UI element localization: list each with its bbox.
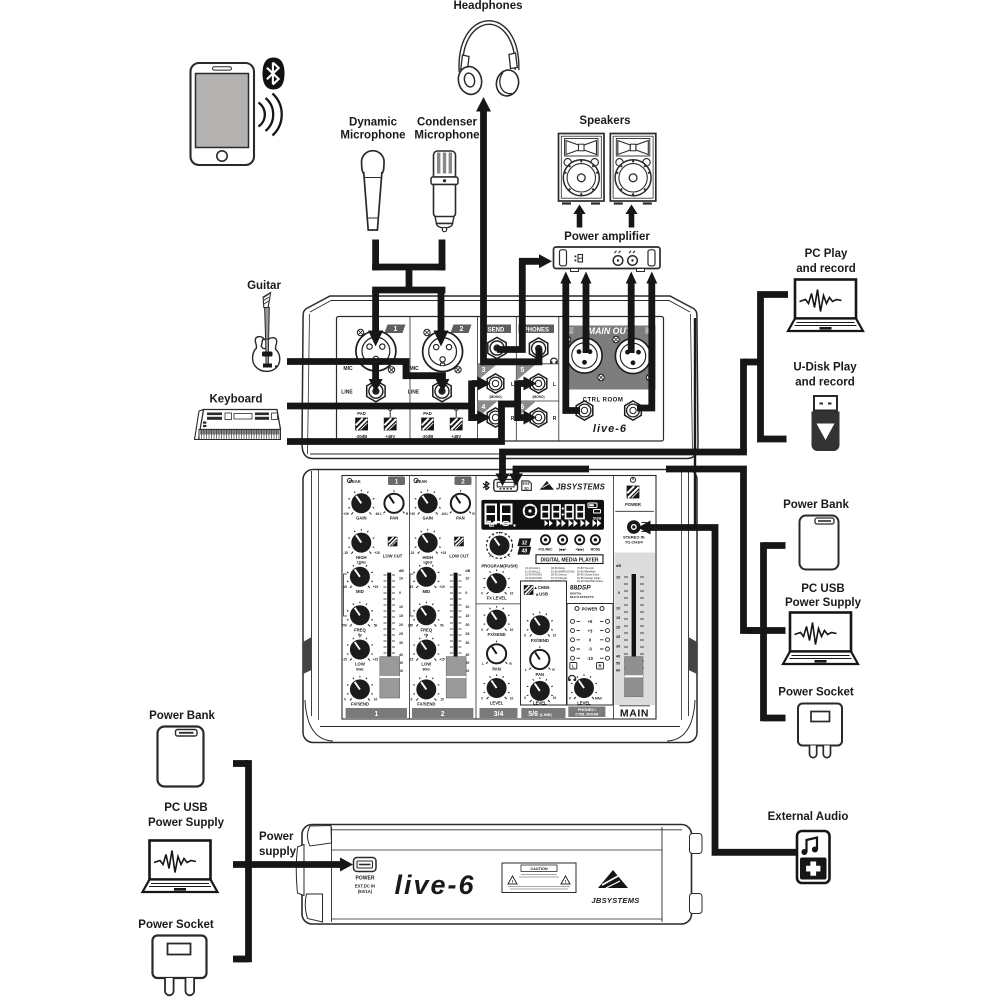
svg-text:POWER: POWER xyxy=(356,876,375,882)
svg-text:DIGITAL MEDIA PLAYER: DIGITAL MEDIA PLAYER xyxy=(540,558,598,564)
svg-text:PC USB: PC USB xyxy=(164,802,207,814)
svg-text:Microphone: Microphone xyxy=(340,130,405,142)
svg-text:12kHz: 12kHz xyxy=(423,561,433,565)
svg-text:-20dB: -20dB xyxy=(422,434,434,439)
svg-text:Power amplifier: Power amplifier xyxy=(564,231,650,243)
svg-text:PROGRAM(PUSH): PROGRAM(PUSH) xyxy=(481,564,518,569)
svg-text:MIC: MIC xyxy=(410,366,420,372)
svg-text:80Hz: 80Hz xyxy=(356,667,364,671)
svg-text:FX/SEND: FX/SEND xyxy=(417,701,435,706)
svg-text:250: 250 xyxy=(408,624,414,628)
svg-text:25: 25 xyxy=(399,632,403,636)
svg-text:M3: M3 xyxy=(489,524,494,528)
svg-text:2: 2 xyxy=(441,711,445,718)
svg-text:+3: +3 xyxy=(588,628,593,633)
svg-text:Speakers: Speakers xyxy=(579,115,630,127)
svg-text:PEAK: PEAK xyxy=(416,479,428,484)
svg-text:LEVEL: LEVEL xyxy=(490,701,504,706)
svg-text:3: 3 xyxy=(482,367,486,374)
svg-text:Headphones: Headphones xyxy=(453,0,522,12)
svg-text:+6: +6 xyxy=(588,619,593,624)
svg-text:-64: -64 xyxy=(441,512,446,516)
svg-text:GAIN: GAIN xyxy=(356,516,366,521)
svg-text:48: 48 xyxy=(521,549,528,555)
svg-text:CTRL ROOM: CTRL ROOM xyxy=(575,713,598,717)
svg-text:PEAK: PEAK xyxy=(349,479,361,484)
svg-text:PAN: PAN xyxy=(390,516,399,521)
svg-text:|◀◀/-: |◀◀/- xyxy=(559,547,567,551)
svg-text:LOW: LOW xyxy=(355,662,365,667)
svg-text:+20: +20 xyxy=(343,512,349,516)
svg-text:-15: -15 xyxy=(410,551,415,555)
svg-text:Guitar: Guitar xyxy=(247,280,281,292)
svg-text:0: 0 xyxy=(465,591,467,595)
svg-text:0: 0 xyxy=(344,698,346,702)
svg-text:88DSP: 88DSP xyxy=(570,585,591,592)
svg-text:R: R xyxy=(553,416,557,422)
svg-text:32: 32 xyxy=(522,540,528,546)
svg-text:HIGH: HIGH xyxy=(422,555,432,560)
svg-text:+15: +15 xyxy=(441,551,447,555)
svg-text:(MONO): (MONO) xyxy=(489,395,501,399)
svg-text:25: 25 xyxy=(616,635,620,639)
svg-text:FX LEVEL: FX LEVEL xyxy=(487,596,507,601)
svg-text:L: L xyxy=(447,512,449,516)
svg-text:+48V: +48V xyxy=(451,434,461,439)
svg-text:-3: -3 xyxy=(588,647,592,652)
svg-text:0: 0 xyxy=(524,634,526,638)
svg-text:EXT.DC IN: EXT.DC IN xyxy=(355,884,375,889)
svg-text:10: 10 xyxy=(465,605,469,609)
svg-text:POWER: POWER xyxy=(625,502,641,507)
svg-text:20: 20 xyxy=(465,623,469,627)
svg-text:R: R xyxy=(598,664,601,669)
svg-text:PC USB: PC USB xyxy=(801,583,844,595)
svg-text:0: 0 xyxy=(481,628,483,632)
svg-text:250: 250 xyxy=(341,624,347,628)
svg-text:PAD: PAD xyxy=(357,411,366,416)
svg-text:25: 25 xyxy=(465,632,469,636)
svg-text:15: 15 xyxy=(616,616,620,620)
svg-text:PAN: PAN xyxy=(456,516,465,521)
svg-text:LINE: LINE xyxy=(341,389,353,395)
svg-text:LOW: LOW xyxy=(421,662,431,667)
svg-text:40: 40 xyxy=(616,655,620,659)
svg-text:and record: and record xyxy=(795,377,854,389)
svg-text:dB: dB xyxy=(399,569,404,573)
svg-text:HIGH: HIGH xyxy=(356,555,366,560)
svg-text:Condenser: Condenser xyxy=(417,117,478,129)
svg-text:MAIN OUT: MAIN OUT xyxy=(588,326,632,336)
svg-text:FREQ: FREQ xyxy=(420,627,432,632)
svg-text:10: 10 xyxy=(553,696,557,700)
svg-text:2: 2 xyxy=(460,326,464,333)
svg-text:and record: and record xyxy=(796,263,855,275)
svg-text:5k: 5k xyxy=(440,624,444,628)
svg-text:1: 1 xyxy=(394,326,398,333)
svg-text:20: 20 xyxy=(616,626,620,630)
svg-text:-15: -15 xyxy=(343,551,348,555)
svg-text:-64: -64 xyxy=(375,512,380,516)
svg-text:External Audio: External Audio xyxy=(768,811,849,823)
svg-text:96-99 Wah/Wah Delay: 96-99 Wah/Wah Delay xyxy=(577,579,604,583)
svg-text:U-Disk Play: U-Disk Play xyxy=(793,362,857,374)
svg-text:15: 15 xyxy=(399,614,403,618)
svg-text:+20: +20 xyxy=(410,512,416,516)
svg-text:JBSYSTEMS: JBSYSTEMS xyxy=(591,896,639,905)
svg-text:Power Supply: Power Supply xyxy=(785,597,862,609)
svg-text:L: L xyxy=(553,382,556,388)
svg-text:MID: MID xyxy=(422,589,430,594)
svg-text:10: 10 xyxy=(510,696,514,700)
svg-text:-15: -15 xyxy=(409,658,414,662)
svg-text:0: 0 xyxy=(618,591,620,595)
svg-text:10: 10 xyxy=(616,576,620,580)
svg-text:FOL/REC: FOL/REC xyxy=(539,547,554,551)
svg-text:supply: supply xyxy=(259,846,297,858)
svg-text:10: 10 xyxy=(399,605,403,609)
svg-text:10: 10 xyxy=(553,634,557,638)
svg-text:JBSYSTEMS: JBSYSTEMS xyxy=(556,483,606,492)
svg-text:MIC: MIC xyxy=(343,366,353,372)
svg-text:Power Socket: Power Socket xyxy=(138,919,214,931)
svg-text:(5V/1A): (5V/1A) xyxy=(358,889,373,894)
svg-text:-20dB: -20dB xyxy=(356,434,368,439)
svg-text:-15: -15 xyxy=(342,658,347,662)
svg-text:5/6 (LINE): 5/6 (LINE) xyxy=(528,711,552,718)
svg-text:PAN: PAN xyxy=(492,666,501,671)
svg-text:+48V: +48V xyxy=(385,434,395,439)
svg-text:0: 0 xyxy=(481,696,483,700)
svg-text:-15: -15 xyxy=(409,585,414,589)
svg-text:+15: +15 xyxy=(439,658,445,662)
svg-text:10: 10 xyxy=(465,577,469,581)
svg-text:live-6: live-6 xyxy=(593,423,627,435)
svg-text:FX/SEND: FX/SEND xyxy=(488,632,506,637)
svg-text:PHONES: PHONES xyxy=(524,327,549,333)
svg-text:Microphone: Microphone xyxy=(414,130,479,142)
svg-text:SEND: SEND xyxy=(488,327,505,333)
svg-text:Power Supply: Power Supply xyxy=(148,817,225,829)
svg-text:Power Bank: Power Bank xyxy=(783,499,849,511)
svg-text:MODE: MODE xyxy=(591,547,601,551)
svg-text:SD: SD xyxy=(524,486,529,490)
svg-text:L: L xyxy=(482,662,484,666)
svg-text:0: 0 xyxy=(524,696,526,700)
svg-text:FX/SEND: FX/SEND xyxy=(351,701,369,706)
svg-text:live-6: live-6 xyxy=(394,870,475,900)
svg-text:R: R xyxy=(511,416,515,422)
svg-text:+15: +15 xyxy=(373,658,379,662)
svg-text:0: 0 xyxy=(399,591,401,595)
svg-text:10: 10 xyxy=(510,628,514,632)
svg-text:12kHz: 12kHz xyxy=(357,561,367,565)
svg-text:dB: dB xyxy=(465,569,470,573)
svg-text:20: 20 xyxy=(399,623,403,627)
svg-text:GAIN: GAIN xyxy=(422,516,432,521)
svg-text:50: 50 xyxy=(616,662,620,666)
svg-text:LOW CUT: LOW CUT xyxy=(449,554,469,559)
svg-text:10: 10 xyxy=(510,592,514,596)
svg-text:15: 15 xyxy=(465,614,469,618)
svg-text:LEVEL: LEVEL xyxy=(577,701,591,706)
svg-text:10: 10 xyxy=(374,698,378,702)
svg-text:MAIN: MAIN xyxy=(620,708,649,720)
svg-text:(MONO): (MONO) xyxy=(532,395,544,399)
svg-text:POWER: POWER xyxy=(582,607,598,612)
svg-text:+15: +15 xyxy=(439,585,445,589)
svg-text:+15: +15 xyxy=(373,585,379,589)
svg-text:5k: 5k xyxy=(374,624,378,628)
svg-text:4: 4 xyxy=(482,404,486,411)
svg-text:▲CH5/6: ▲CH5/6 xyxy=(533,585,550,590)
svg-text:10: 10 xyxy=(399,577,403,581)
svg-text:▲USB: ▲USB xyxy=(535,592,548,597)
svg-text:30: 30 xyxy=(465,641,469,645)
svg-text:10: 10 xyxy=(440,698,444,702)
svg-text:10: 10 xyxy=(616,607,620,611)
svg-text:Power: Power xyxy=(259,831,294,843)
svg-text:60: 60 xyxy=(616,669,620,673)
svg-text:PHONES /: PHONES / xyxy=(578,708,597,712)
svg-text:MULTI-EFFECTS: MULTI-EFFECTS xyxy=(570,595,594,599)
svg-text:L: L xyxy=(525,668,527,672)
svg-text:0: 0 xyxy=(411,698,413,702)
svg-text:+/▶▶|: +/▶▶| xyxy=(575,547,584,551)
svg-text:L: L xyxy=(380,512,382,516)
svg-text:Keyboard: Keyboard xyxy=(209,394,262,406)
svg-text:L: L xyxy=(511,382,514,388)
svg-text:30: 30 xyxy=(616,645,620,649)
svg-text:TO CH3/4: TO CH3/4 xyxy=(625,540,644,545)
svg-text:LINE: LINE xyxy=(408,389,420,395)
svg-text:PC Play: PC Play xyxy=(805,248,848,260)
svg-text:FX/SEND: FX/SEND xyxy=(531,638,549,643)
svg-text:dB: dB xyxy=(616,564,621,568)
svg-text:LEVEL: LEVEL xyxy=(533,701,547,706)
svg-text:3/4: 3/4 xyxy=(494,711,504,718)
svg-text:-15: -15 xyxy=(342,585,347,589)
svg-text:L: L xyxy=(572,664,575,669)
svg-text:+15: +15 xyxy=(374,551,380,555)
svg-text:CAUTION: CAUTION xyxy=(530,867,548,871)
svg-text:0: 0 xyxy=(481,592,483,596)
svg-text:MAX: MAX xyxy=(595,696,603,700)
svg-text:1: 1 xyxy=(374,711,378,718)
svg-text:-10: -10 xyxy=(587,656,594,661)
svg-text:FREQ: FREQ xyxy=(354,627,366,632)
svg-text:LOW CUT: LOW CUT xyxy=(383,554,403,559)
svg-text:80Hz: 80Hz xyxy=(423,667,431,671)
svg-text:MID: MID xyxy=(356,589,364,594)
svg-text:Power Socket: Power Socket xyxy=(778,687,854,699)
svg-text:PAD: PAD xyxy=(423,411,432,416)
svg-text:0: 0 xyxy=(569,696,571,700)
svg-text:PAN: PAN xyxy=(536,672,545,677)
svg-text:Power Bank: Power Bank xyxy=(149,710,215,722)
svg-text:30: 30 xyxy=(399,641,403,645)
svg-text:5: 5 xyxy=(520,367,524,374)
svg-text:Dynamic: Dynamic xyxy=(349,117,398,129)
